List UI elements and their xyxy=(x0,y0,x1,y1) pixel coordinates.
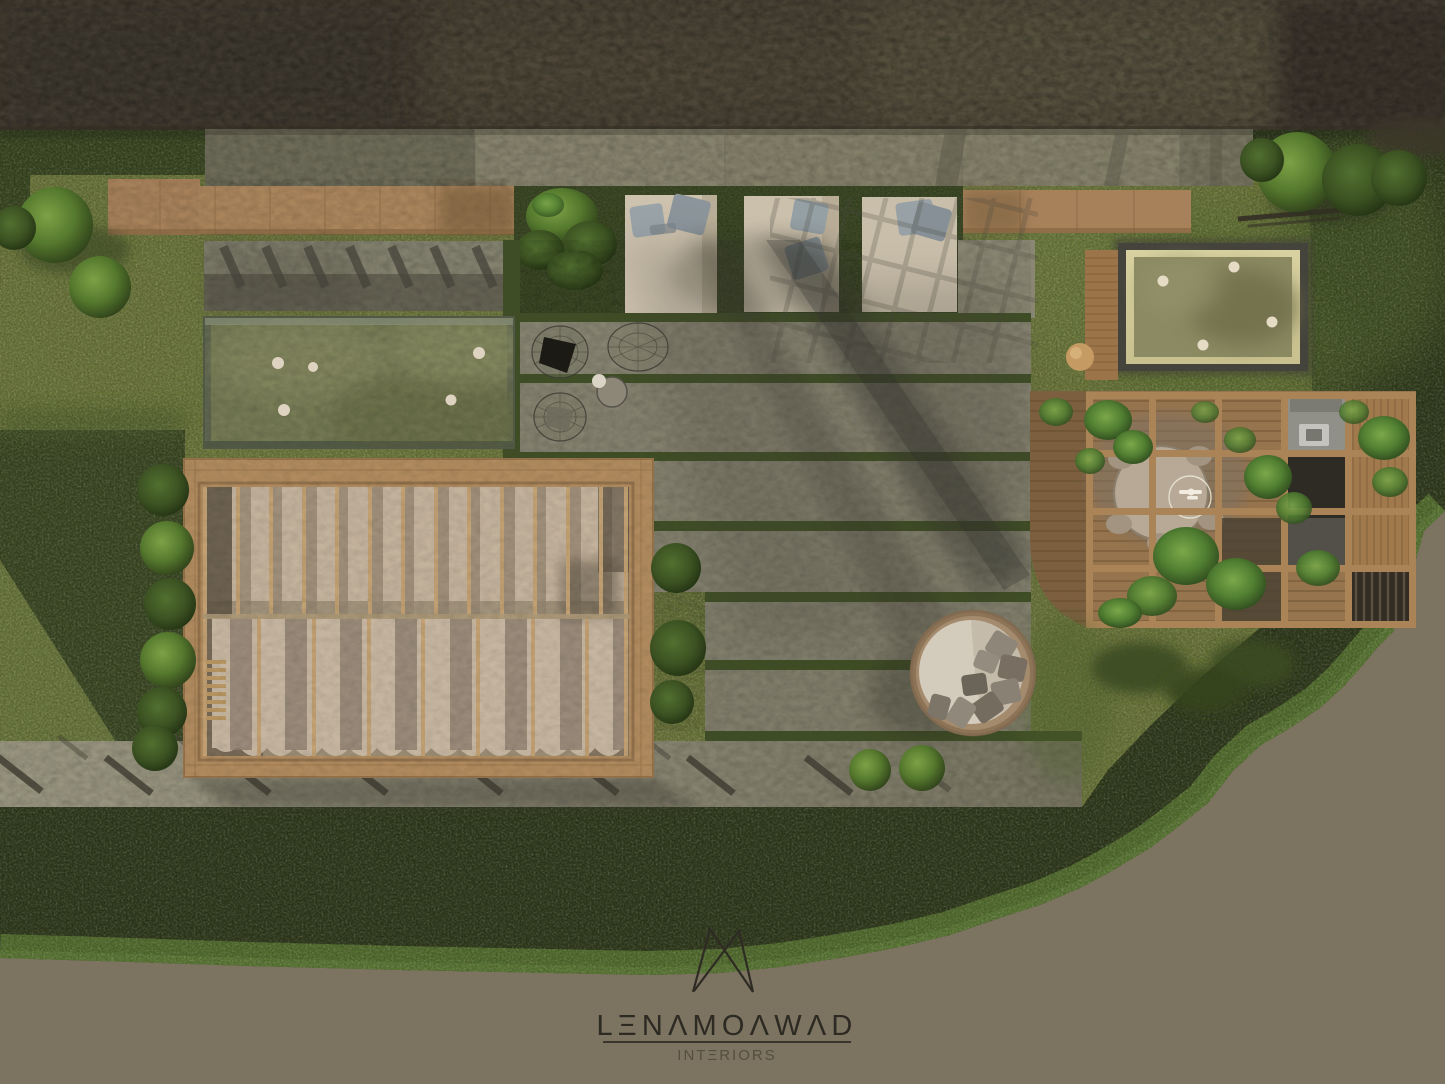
svg-text:INTΞRIORS: INTΞRIORS xyxy=(677,1047,776,1064)
svg-text:LΞNΛMOΛWΛD: LΞNΛMOΛWΛD xyxy=(596,1010,857,1042)
